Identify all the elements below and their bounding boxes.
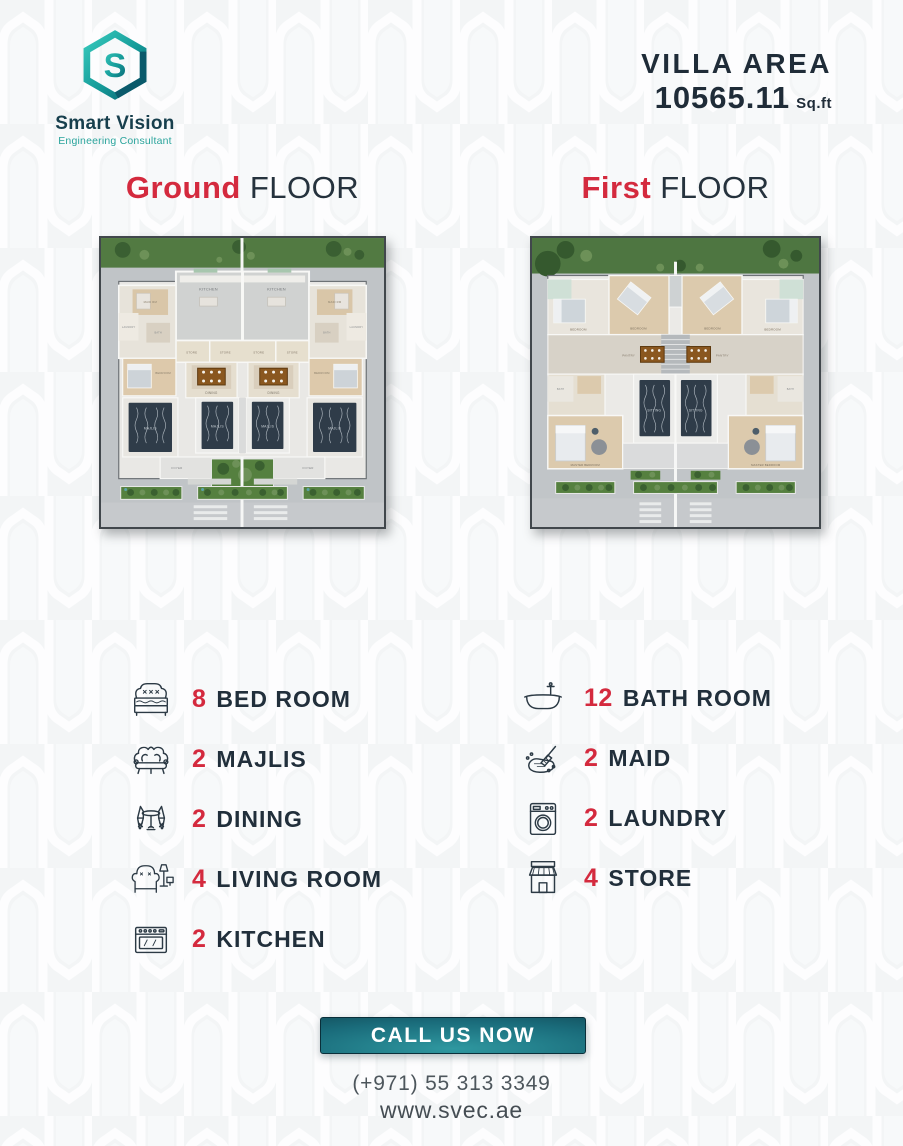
svg-text:MAJLIS: MAJLIS [211, 424, 224, 428]
feature-row-maid: 2 MAID [520, 728, 772, 788]
bathtub-icon [520, 675, 566, 721]
svg-text:STORE: STORE [186, 350, 197, 354]
feature-label: KITCHEN [216, 926, 325, 953]
feature-row-majlis: 2 MAJLIS [128, 729, 382, 789]
svg-text:BATH: BATH [323, 331, 330, 335]
ground-floor-title-accent: Ground [126, 170, 241, 205]
first-floor-title: FirstFLOOR [530, 170, 821, 210]
feature-count: 2 [192, 805, 206, 834]
storefront-icon [520, 855, 566, 901]
svg-text:BATH: BATH [787, 387, 794, 391]
svg-text:PANTRY: PANTRY [716, 353, 729, 357]
svg-text:PANTRY: PANTRY [622, 353, 635, 357]
ground-floor-plan-image: KITCHEN KITCHEN STORE STORE STORE STORE … [99, 236, 386, 529]
villa-area-block: VILLA AREA 10565.11Sq.ft [641, 48, 832, 116]
feature-count: 12 [584, 684, 613, 713]
armchair-lamp-icon [128, 856, 174, 902]
features-right-column: 12 BATH ROOM 2 MAID 2 LAUNDRY 4 STORE [520, 668, 772, 908]
feature-count: 2 [584, 804, 598, 833]
first-floor-plan-image: BEDROOM BEDROOM BEDROOM BEDROOM PANTRY P… [530, 236, 821, 529]
svg-text:BEDROOM: BEDROOM [764, 328, 781, 332]
svg-text:STORE: STORE [253, 350, 264, 354]
feature-label: MAID [608, 745, 671, 772]
villa-flyer: S Smart Vision Engineering Consultant VI… [0, 0, 903, 1146]
svg-text:FOYER: FOYER [303, 466, 314, 470]
svg-text:MAJLIS: MAJLIS [328, 426, 341, 430]
feature-label: BED ROOM [216, 686, 351, 713]
svg-text:MASTER BEDROOM: MASTER BEDROOM [751, 463, 781, 467]
feature-label: LIVING ROOM [216, 866, 382, 893]
washing-machine-icon [520, 795, 566, 841]
svg-text:LAUNDRY: LAUNDRY [122, 325, 136, 329]
svg-text:BATH: BATH [154, 331, 161, 335]
phone-number[interactable]: (+971) 55 313 3349 [0, 1072, 903, 1096]
stove-icon [128, 916, 174, 962]
svg-text:STORE: STORE [220, 350, 231, 354]
svg-text:BEDROOM: BEDROOM [155, 371, 171, 375]
feature-label: BATH ROOM [623, 685, 772, 712]
bed-icon [128, 676, 174, 722]
feature-row-dining: 2 DINING [128, 789, 382, 849]
website-link[interactable]: www.svec.ae [0, 1097, 903, 1124]
feature-row-laundry: 2 LAUNDRY [520, 788, 772, 848]
villa-area-value-row: 10565.11Sq.ft [641, 80, 832, 116]
svg-text:BEDROOM: BEDROOM [570, 328, 587, 332]
feature-row-bedroom: 8 BED ROOM [128, 669, 382, 729]
svg-text:SITTING: SITTING [647, 409, 661, 413]
svg-text:LAUNDRY: LAUNDRY [350, 325, 364, 329]
svg-text:BEDROOM: BEDROOM [314, 371, 330, 375]
smart-vision-logo-icon: S [78, 24, 152, 106]
feature-row-bathroom: 12 BATH ROOM [520, 668, 772, 728]
cleaning-icon [520, 735, 566, 781]
brand-tagline: Engineering Consultant [40, 135, 190, 147]
first-floor-title-accent: First [582, 170, 652, 205]
feature-row-store: 4 STORE [520, 848, 772, 908]
sofa-icon [128, 736, 174, 782]
svg-text:SITTING: SITTING [689, 409, 703, 413]
feature-label: DINING [216, 806, 303, 833]
brand-block: S Smart Vision Engineering Consultant [40, 24, 190, 147]
feature-count: 2 [192, 925, 206, 954]
brand-name: Smart Vision [40, 113, 190, 135]
villa-area-value: 10565.11 [655, 80, 791, 115]
svg-text:DINING: DINING [267, 391, 280, 395]
feature-row-living-room: 4 LIVING ROOM [128, 849, 382, 909]
first-floor-title-rest: FLOOR [660, 170, 769, 205]
svg-text:MASTER BEDROOM: MASTER BEDROOM [571, 463, 601, 467]
feature-count: 8 [192, 685, 206, 714]
svg-text:BATH: BATH [557, 387, 564, 391]
feature-count: 4 [192, 865, 206, 894]
svg-text:MAJLIS: MAJLIS [144, 426, 157, 430]
ground-floor-title: GroundFLOOR [99, 170, 386, 210]
svg-text:BEDROOM: BEDROOM [630, 327, 647, 331]
ground-floor-title-rest: FLOOR [250, 170, 359, 205]
feature-label: MAJLIS [216, 746, 306, 773]
features-left-column: 8 BED ROOM 2 MAJLIS 2 DINING 4 LIVING RO… [128, 669, 382, 969]
svg-text:KITCHEN: KITCHEN [199, 286, 218, 291]
svg-text:STORE: STORE [287, 350, 298, 354]
dining-chairs-icon [128, 796, 174, 842]
feature-label: LAUNDRY [608, 805, 727, 832]
call-us-now-button[interactable]: CALL US NOW [320, 1017, 586, 1054]
feature-row-kitchen: 2 KITCHEN [128, 909, 382, 969]
villa-area-label: VILLA AREA [641, 48, 832, 80]
svg-text:MAID RM: MAID RM [144, 300, 158, 304]
svg-text:MAJLIS: MAJLIS [261, 424, 274, 428]
svg-text:S: S [104, 47, 127, 85]
svg-text:BEDROOM: BEDROOM [704, 327, 721, 331]
feature-count: 2 [584, 744, 598, 773]
villa-area-unit: Sq.ft [796, 95, 832, 112]
svg-text:MAID RM: MAID RM [328, 300, 342, 304]
feature-label: STORE [608, 865, 692, 892]
svg-text:DINING: DINING [205, 391, 218, 395]
feature-count: 4 [584, 864, 598, 893]
svg-text:KITCHEN: KITCHEN [267, 286, 286, 291]
svg-text:FOYER: FOYER [171, 466, 182, 470]
feature-count: 2 [192, 745, 206, 774]
